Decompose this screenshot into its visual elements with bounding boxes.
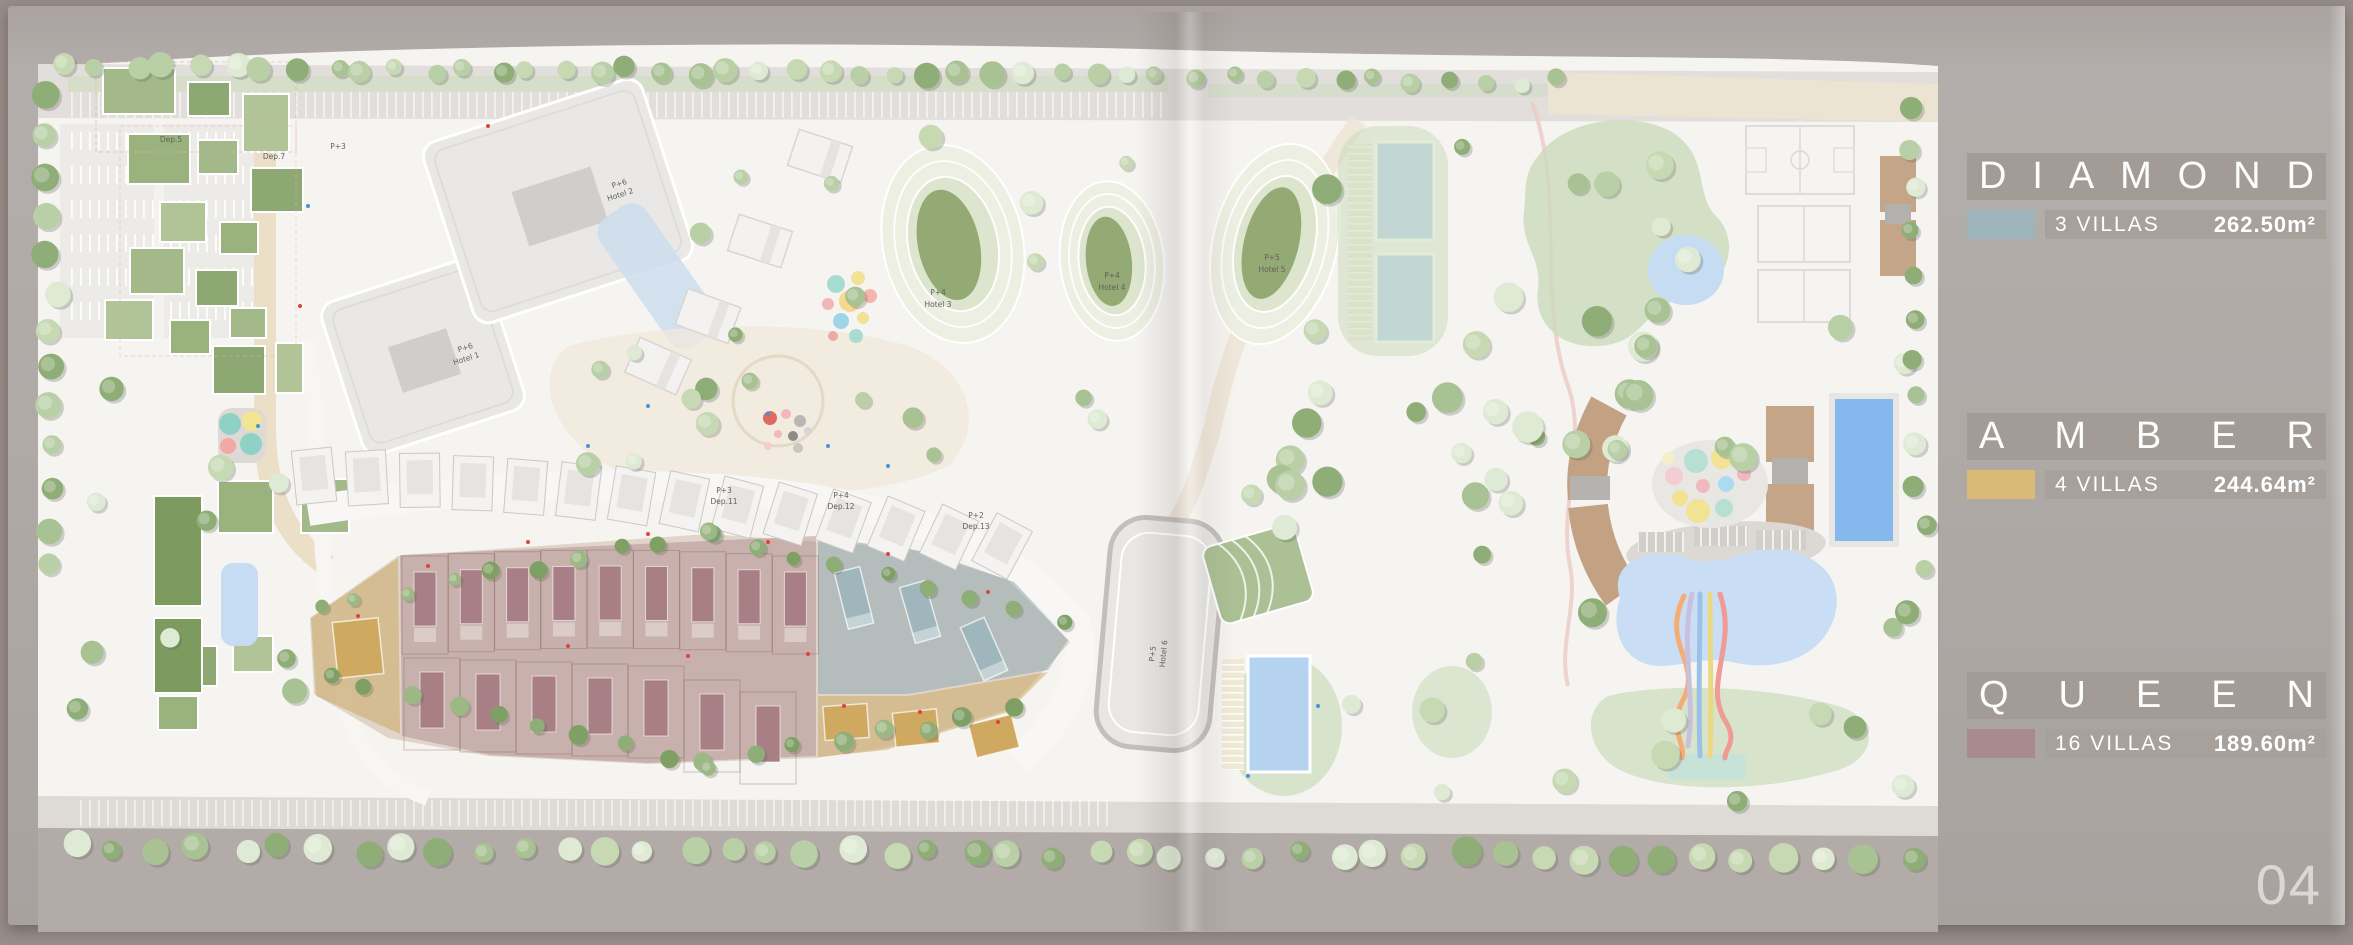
- villa-area: 262.50m²: [2214, 212, 2316, 238]
- legend-info-row: 16 VILLAS 189.60m²: [1967, 729, 2326, 758]
- legend-title-bar: DIAMOND: [1967, 153, 2326, 200]
- legend-title: DIAMOND: [1979, 155, 2314, 198]
- legend-info-bar: 3 VILLAS 262.50m²: [2045, 210, 2326, 239]
- svg-text:P+5: P+5: [1147, 645, 1158, 662]
- svg-text:P+4: P+4: [833, 491, 849, 500]
- legend-title-bar: QUEEN: [1967, 672, 2326, 719]
- amber-villa-left: [332, 618, 384, 679]
- svg-text:Hotel 4: Hotel 4: [1098, 283, 1125, 292]
- diamond-color-swatch: [1967, 210, 2035, 239]
- villa-count: 16 VILLAS: [2055, 732, 2173, 756]
- amber-color-swatch: [1967, 470, 2035, 499]
- page-number: 04: [2256, 852, 2322, 917]
- svg-text:Hotel 5: Hotel 5: [1258, 265, 1285, 274]
- legend-info-row: 4 VILLAS 244.64m²: [1967, 470, 2326, 499]
- legend-info-row: 3 VILLAS 262.50m²: [1967, 210, 2326, 239]
- villa-count: 3 VILLAS: [2055, 213, 2160, 237]
- svg-text:P+2: P+2: [968, 511, 984, 520]
- legend-title-bar: AMBER: [1967, 413, 2326, 460]
- svg-text:Dep.7: Dep.7: [263, 152, 286, 161]
- map-scene: [31, 44, 1939, 932]
- legend-info-bar: 4 VILLAS 244.64m²: [2045, 470, 2326, 499]
- svg-text:P+3: P+3: [330, 142, 346, 151]
- legend-info-bar: 16 VILLAS 189.60m²: [2045, 729, 2326, 758]
- page-spread: P+6Hotel 1P+6Hotel 2P+4Hotel 3P+4Hotel 4…: [8, 6, 2345, 925]
- svg-text:P+4: P+4: [1104, 271, 1120, 280]
- sports-courts: [1746, 126, 1854, 322]
- legend-title: QUEEN: [1979, 674, 2314, 717]
- svg-text:Dep.5: Dep.5: [160, 135, 183, 144]
- legend-entry-queen: QUEEN 16 VILLAS 189.60m²: [1967, 672, 2326, 758]
- legend-entry-amber: AMBER 4 VILLAS 244.64m²: [1967, 413, 2326, 499]
- legend-entry-diamond: DIAMOND 3 VILLAS 262.50m²: [1967, 153, 2326, 239]
- villa-area: 189.60m²: [2214, 731, 2316, 757]
- legend-title: AMBER: [1979, 415, 2314, 458]
- brochure-page: { "page": {"number": "04"}, "legend": { …: [0, 0, 2353, 939]
- svg-text:P+5: P+5: [1264, 253, 1280, 262]
- villa-count: 4 VILLAS: [2055, 473, 2160, 497]
- playground: [218, 408, 266, 463]
- svg-text:P+4: P+4: [930, 288, 946, 297]
- villa-area: 244.64m²: [2214, 472, 2316, 498]
- svg-text:Hotel 3: Hotel 3: [924, 300, 951, 309]
- svg-text:P+3: P+3: [716, 486, 732, 495]
- svg-text:Dep.13: Dep.13: [962, 522, 989, 531]
- svg-text:Dep.11: Dep.11: [710, 497, 737, 506]
- svg-text:Dep.12: Dep.12: [827, 502, 854, 511]
- queen-color-swatch: [1967, 729, 2035, 758]
